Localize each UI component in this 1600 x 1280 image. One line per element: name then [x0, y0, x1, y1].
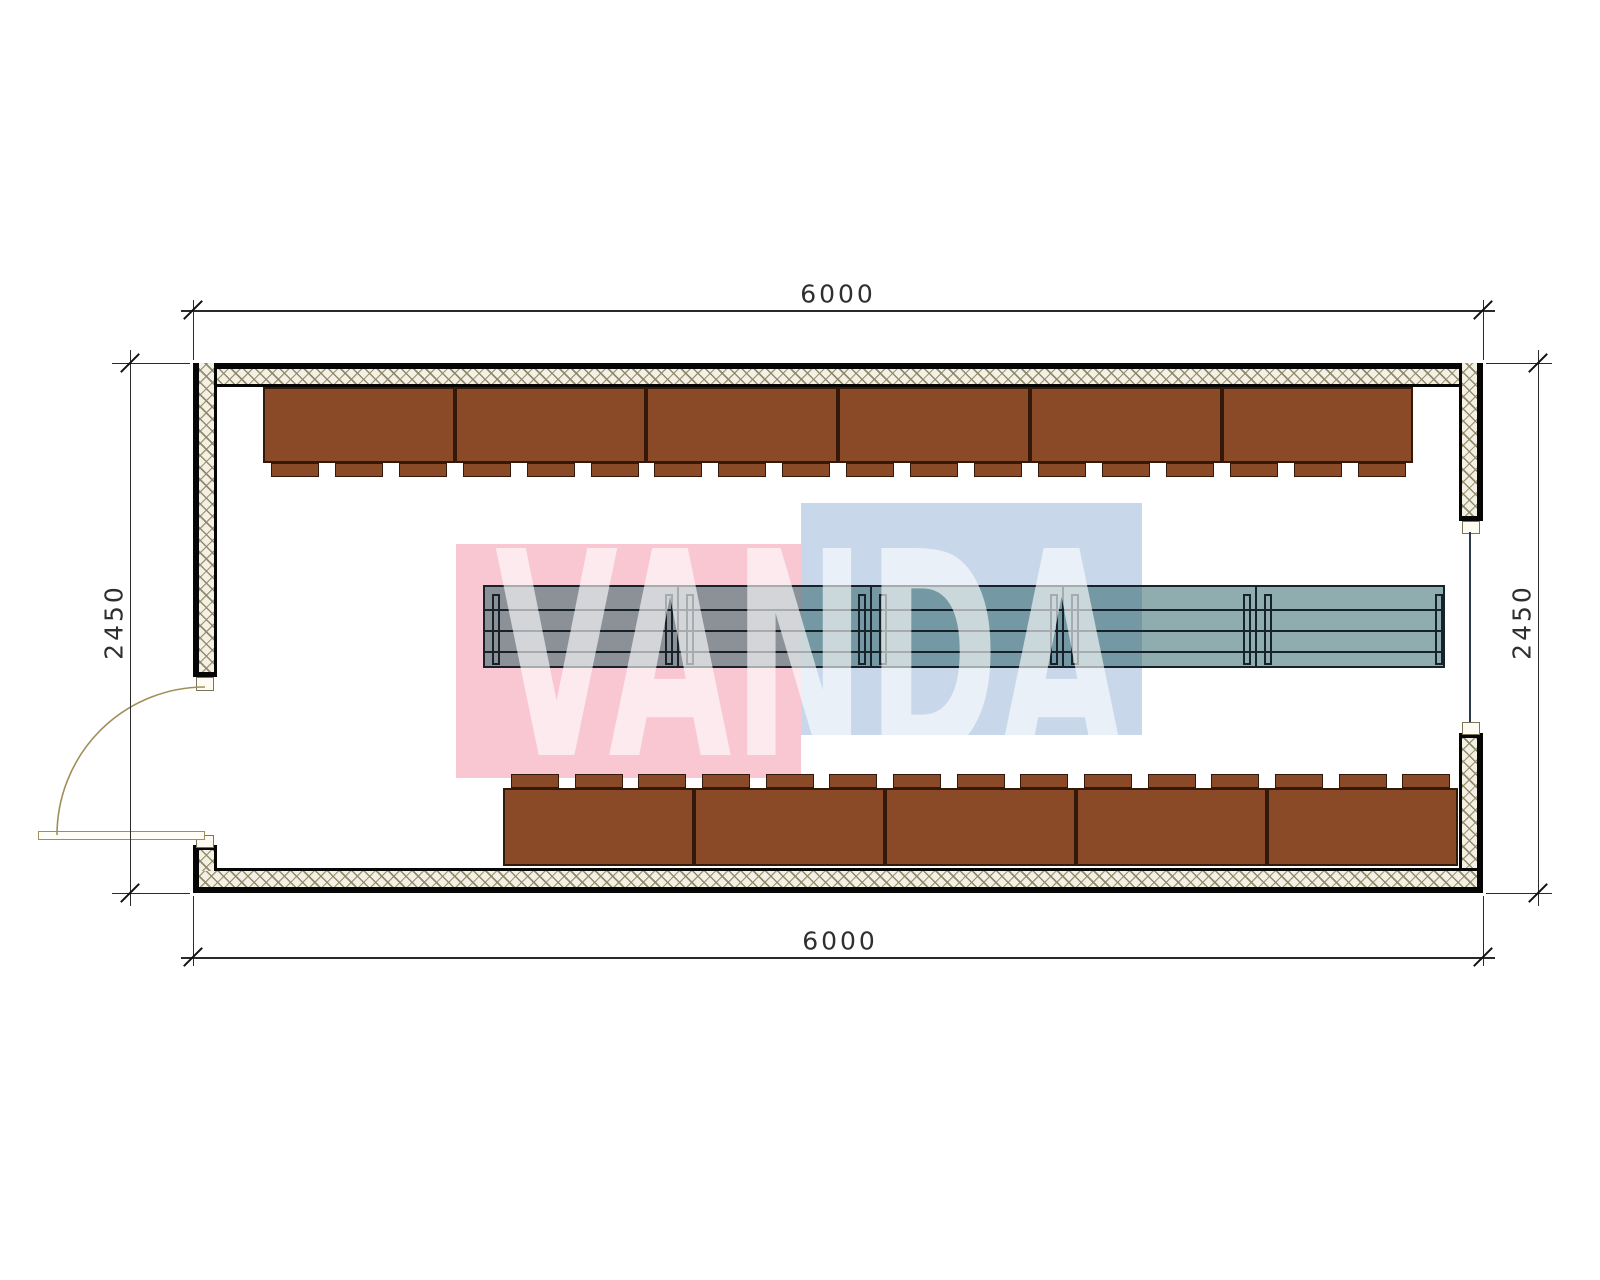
extension-line-left	[112, 363, 190, 364]
extension-line-right	[1486, 893, 1552, 894]
extension-line-left	[112, 893, 190, 894]
dimension-line-bottom	[181, 957, 1495, 959]
dimension-line-right	[1538, 350, 1539, 906]
floor-plan-canvas: 6000 6000 2450 2450 VANDA	[0, 0, 1600, 1280]
dimension-label-bottom: 6000	[802, 927, 878, 956]
dimension-label-top: 6000	[800, 280, 876, 309]
extension-line-right	[1486, 363, 1552, 364]
dimension-label-left: 2450	[100, 584, 129, 660]
dimension-line-left	[130, 350, 131, 906]
dimension-line-top	[181, 310, 1495, 312]
door-swing-arc	[0, 0, 1600, 1280]
dimension-label-right: 2450	[1508, 584, 1537, 660]
